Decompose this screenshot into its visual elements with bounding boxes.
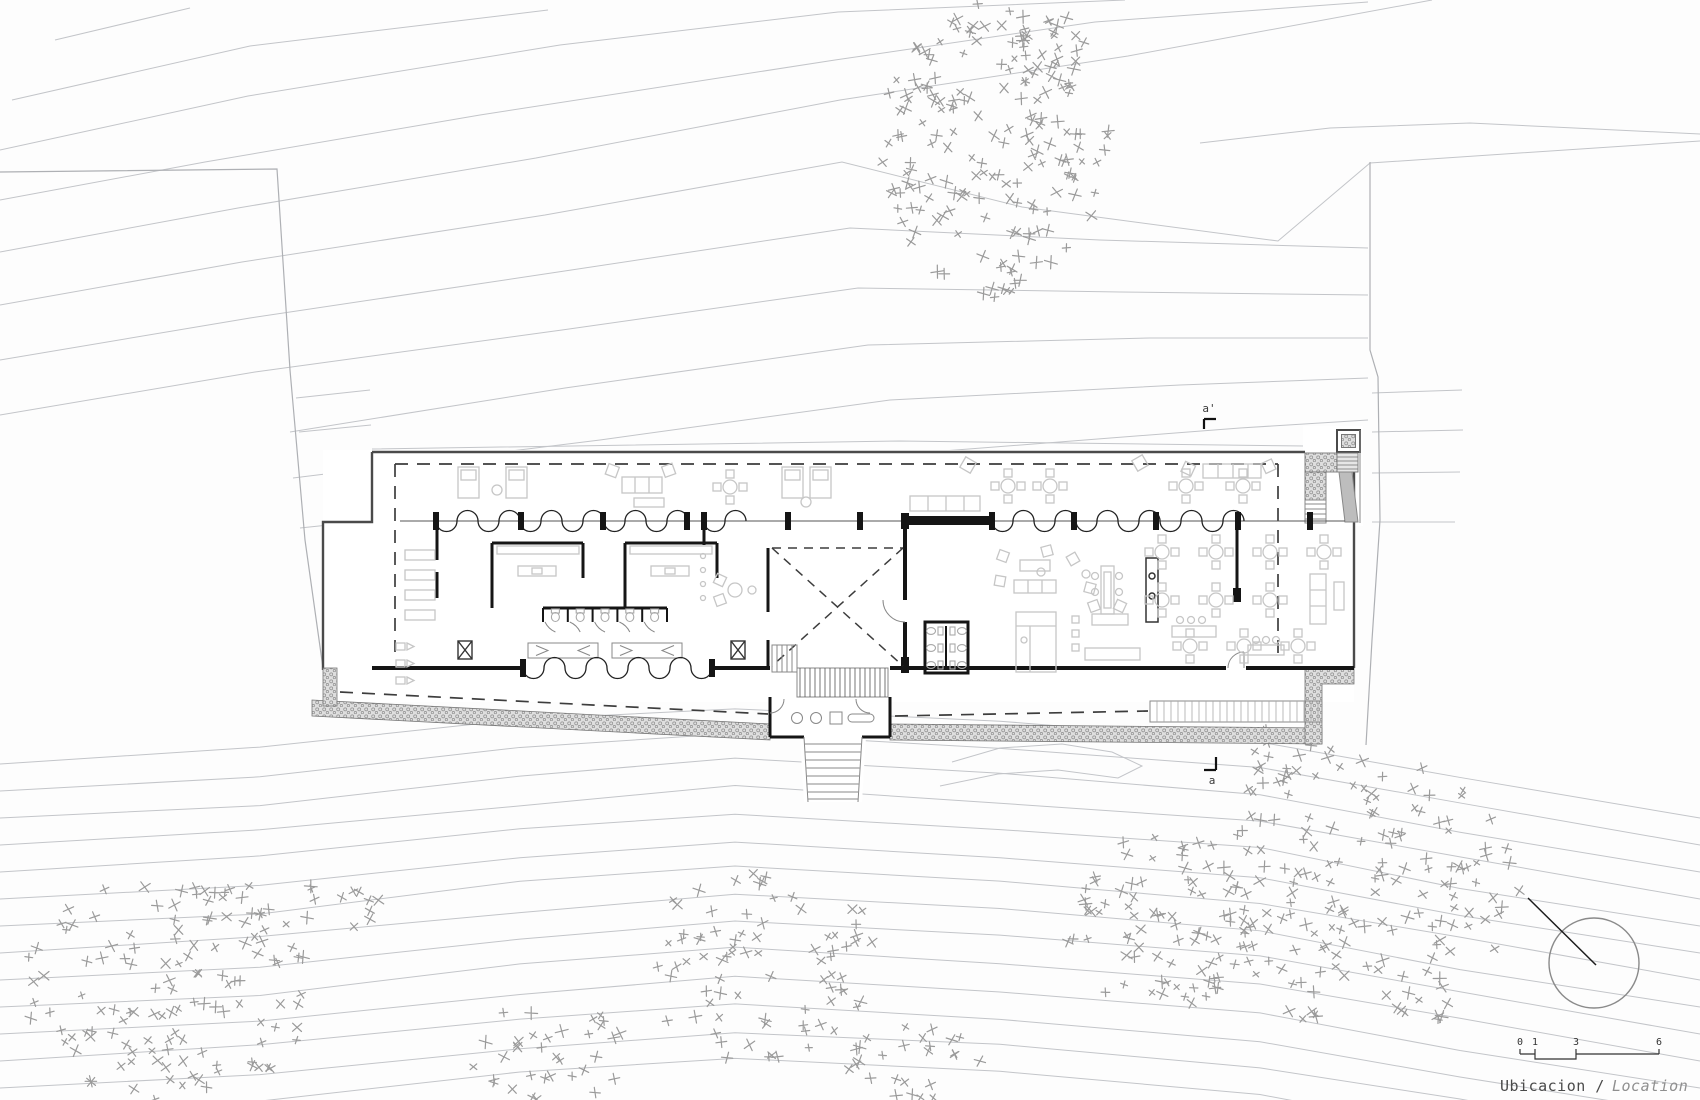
drawing-caption: Ubicacion / Location xyxy=(1500,1077,1688,1095)
plan-canvas: a' a 0136 Ubicacion / Location xyxy=(0,0,1700,1100)
media-wall xyxy=(905,516,992,525)
caption-primary: Ubicacion / xyxy=(1500,1077,1605,1095)
scale-label: 6 xyxy=(1656,1037,1662,1048)
scale-label: 3 xyxy=(1573,1037,1579,1048)
caption-secondary: Location xyxy=(1612,1077,1688,1095)
section-marker-top-label: a' xyxy=(1202,402,1215,415)
section-marker-bottom-label: a xyxy=(1209,774,1216,787)
scale-label: 0 xyxy=(1517,1037,1523,1048)
scale-label: 1 xyxy=(1532,1037,1538,1048)
site-plan-drawing: a' a 0136 Ubicacion / Location xyxy=(0,0,1700,1100)
